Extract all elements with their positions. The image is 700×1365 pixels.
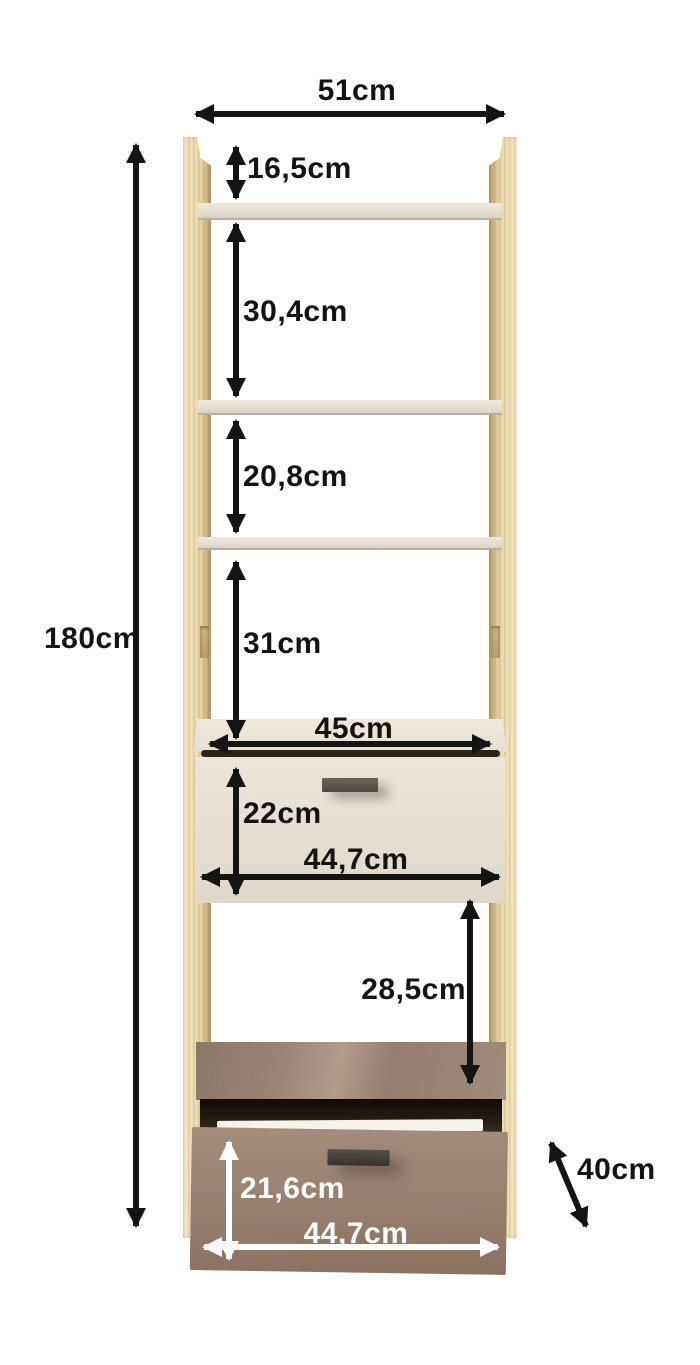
label-shelf-gap-3: 31cm [243,627,322,660]
label-middle-drawer-width: 44,7cm [304,843,409,876]
label-top-offset: 16,5cm [247,152,352,185]
label-bottom-drawer-width: 44,7cm [304,1217,409,1250]
label-cabinet-inner-width: 45cm [315,712,394,745]
label-open-compartment-height: 28,5cm [361,973,466,1006]
label-middle-drawer-height: 22cm [243,797,322,830]
label-bottom-drawer-height: 21,6cm [240,1172,345,1205]
label-total-height: 180cm [44,622,140,655]
label-depth: 40cm [577,1153,656,1186]
label-shelf-gap-1: 30,4cm [243,295,348,328]
label-top-width: 51cm [318,74,397,107]
label-shelf-gap-2: 20,8cm [243,460,348,493]
furniture-dimension-diagram: 51cm 180cm 16,5cm 30,4cm 20,8cm 31cm 45c… [0,0,700,1365]
